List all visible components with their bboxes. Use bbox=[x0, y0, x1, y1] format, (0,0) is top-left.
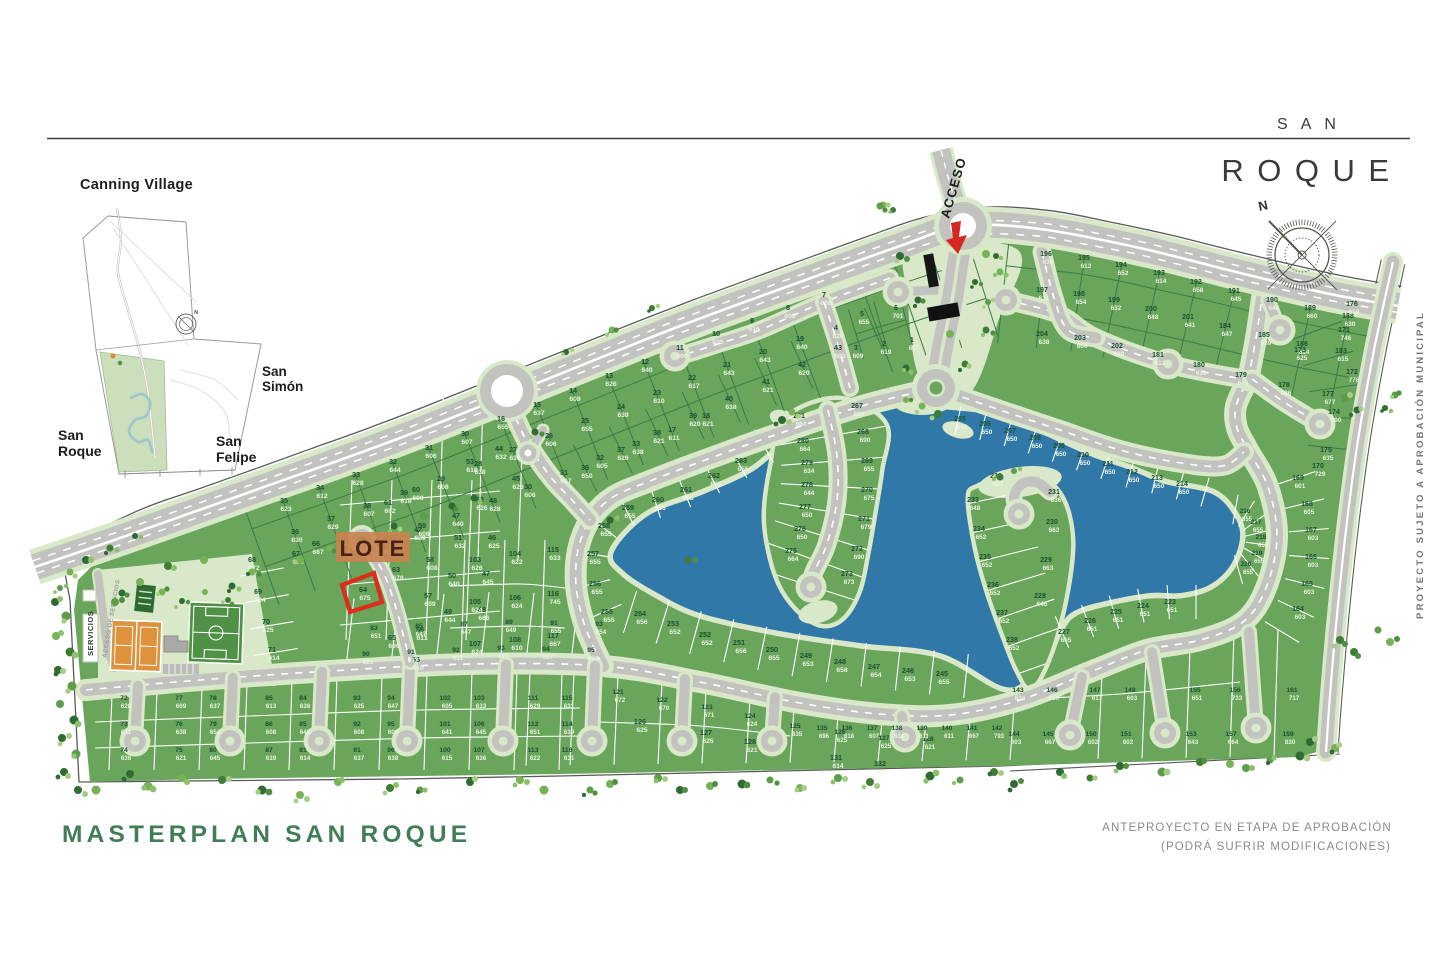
svg-text:260: 260 bbox=[652, 495, 664, 504]
svg-text:159: 159 bbox=[1282, 731, 1294, 738]
svg-text:38: 38 bbox=[363, 501, 371, 510]
svg-text:655: 655 bbox=[1243, 570, 1254, 576]
svg-text:3: 3 bbox=[854, 345, 858, 352]
svg-text:230: 230 bbox=[1046, 519, 1058, 526]
svg-text:42: 42 bbox=[798, 360, 806, 369]
svg-text:87: 87 bbox=[460, 621, 468, 628]
svg-text:701: 701 bbox=[893, 313, 904, 320]
svg-text:91: 91 bbox=[550, 620, 558, 627]
svg-text:171: 171 bbox=[1338, 327, 1350, 334]
svg-text:50: 50 bbox=[448, 571, 456, 580]
svg-text:100: 100 bbox=[439, 747, 451, 754]
svg-text:161: 161 bbox=[1286, 687, 1298, 694]
svg-text:653: 653 bbox=[904, 676, 916, 683]
svg-text:218: 218 bbox=[1256, 534, 1267, 541]
svg-text:652: 652 bbox=[976, 534, 987, 541]
svg-text:262: 262 bbox=[708, 471, 720, 480]
svg-text:104: 104 bbox=[509, 549, 522, 558]
svg-text:690: 690 bbox=[1331, 417, 1342, 424]
svg-text:94: 94 bbox=[387, 695, 395, 702]
svg-text:276: 276 bbox=[794, 526, 806, 533]
svg-text:31: 31 bbox=[560, 468, 568, 477]
svg-text:14: 14 bbox=[569, 386, 578, 395]
svg-text:605: 605 bbox=[596, 463, 608, 470]
svg-text:601: 601 bbox=[1295, 483, 1306, 490]
svg-text:San: San bbox=[58, 427, 84, 443]
svg-text:611: 611 bbox=[121, 729, 132, 736]
svg-text:207: 207 bbox=[1004, 428, 1016, 435]
svg-text:169: 169 bbox=[1292, 475, 1304, 482]
svg-text:651: 651 bbox=[1087, 626, 1098, 633]
svg-text:690: 690 bbox=[854, 554, 865, 561]
svg-text:626: 626 bbox=[471, 565, 483, 572]
svg-text:603: 603 bbox=[1011, 739, 1022, 746]
svg-text:618: 618 bbox=[844, 734, 855, 740]
svg-text:679: 679 bbox=[861, 524, 872, 531]
svg-text:121: 121 bbox=[612, 689, 624, 696]
svg-text:663: 663 bbox=[1043, 565, 1054, 572]
svg-text:20: 20 bbox=[759, 347, 767, 356]
svg-text:225: 225 bbox=[1110, 609, 1122, 616]
svg-text:144: 144 bbox=[1008, 731, 1020, 738]
svg-text:44: 44 bbox=[495, 444, 504, 453]
svg-text:257: 257 bbox=[587, 549, 599, 558]
svg-text:615: 615 bbox=[1338, 356, 1349, 363]
svg-text:SERVICIOS: SERVICIOS bbox=[86, 611, 95, 656]
svg-text:631: 631 bbox=[564, 755, 575, 762]
svg-text:638: 638 bbox=[300, 703, 311, 710]
svg-text:116: 116 bbox=[562, 747, 573, 754]
svg-text:605: 605 bbox=[442, 703, 453, 710]
svg-text:48: 48 bbox=[489, 496, 497, 505]
svg-text:58: 58 bbox=[426, 555, 434, 564]
svg-text:650: 650 bbox=[1129, 477, 1140, 484]
svg-text:609: 609 bbox=[176, 703, 187, 710]
svg-text:Simón: Simón bbox=[262, 379, 303, 394]
svg-text:85: 85 bbox=[265, 695, 273, 702]
svg-text:655: 655 bbox=[581, 426, 593, 433]
svg-text:Roque: Roque bbox=[58, 443, 102, 459]
svg-text:38: 38 bbox=[653, 428, 661, 437]
svg-text:608: 608 bbox=[418, 531, 430, 538]
svg-text:228: 228 bbox=[1034, 593, 1046, 600]
svg-text:1: 1 bbox=[910, 337, 914, 344]
svg-text:638: 638 bbox=[632, 449, 644, 456]
svg-text:251: 251 bbox=[733, 638, 745, 647]
svg-text:614: 614 bbox=[300, 755, 311, 762]
svg-text:261: 261 bbox=[680, 485, 692, 494]
svg-text:27: 27 bbox=[509, 445, 517, 454]
svg-text:625: 625 bbox=[702, 738, 714, 745]
svg-text:122: 122 bbox=[656, 697, 668, 704]
svg-text:29: 29 bbox=[437, 474, 445, 483]
svg-text:13: 13 bbox=[605, 371, 613, 380]
svg-text:70: 70 bbox=[262, 617, 270, 626]
svg-text:148: 148 bbox=[1124, 687, 1136, 694]
svg-text:642: 642 bbox=[300, 729, 311, 736]
svg-text:107: 107 bbox=[469, 639, 481, 648]
svg-text:601: 601 bbox=[876, 769, 888, 776]
svg-text:618: 618 bbox=[1349, 309, 1360, 316]
svg-text:216: 216 bbox=[1240, 508, 1251, 515]
svg-text:624: 624 bbox=[511, 603, 523, 610]
svg-text:248: 248 bbox=[834, 657, 846, 666]
svg-text:61: 61 bbox=[384, 498, 392, 507]
svg-text:614: 614 bbox=[894, 734, 905, 740]
svg-text:83: 83 bbox=[370, 625, 378, 632]
svg-text:68: 68 bbox=[248, 555, 256, 564]
svg-text:623: 623 bbox=[512, 484, 524, 491]
svg-text:650: 650 bbox=[802, 512, 813, 519]
svg-text:60: 60 bbox=[412, 485, 420, 494]
svg-text:2: 2 bbox=[882, 341, 886, 348]
svg-text:655: 655 bbox=[710, 481, 722, 488]
svg-text:651: 651 bbox=[371, 633, 382, 640]
svg-text:667: 667 bbox=[549, 641, 561, 648]
svg-text:670: 670 bbox=[659, 705, 670, 712]
svg-text:620: 620 bbox=[689, 421, 701, 428]
svg-text:140: 140 bbox=[942, 725, 953, 732]
svg-text:39: 39 bbox=[689, 411, 697, 420]
svg-text:95: 95 bbox=[587, 647, 595, 654]
svg-text:93: 93 bbox=[595, 621, 603, 628]
svg-text:183: 183 bbox=[1335, 348, 1347, 355]
svg-text:621: 621 bbox=[176, 755, 187, 762]
svg-text:655: 655 bbox=[603, 617, 615, 624]
svg-text:650: 650 bbox=[1049, 695, 1060, 702]
svg-text:612: 612 bbox=[1155, 360, 1166, 367]
svg-text:PROYECTO SUJETO A APROBACIÓN M: PROYECTO SUJETO A APROBACIÓN MUNICIPAL bbox=[1414, 311, 1426, 619]
svg-text:655: 655 bbox=[600, 531, 612, 538]
svg-text:647: 647 bbox=[1222, 331, 1233, 338]
svg-text:650: 650 bbox=[797, 534, 808, 541]
svg-text:105: 105 bbox=[469, 597, 481, 606]
svg-text:696: 696 bbox=[388, 643, 400, 650]
svg-text:652: 652 bbox=[1009, 645, 1020, 652]
svg-text:213: 213 bbox=[1151, 475, 1163, 482]
svg-text:612: 612 bbox=[1081, 263, 1092, 270]
svg-text:651: 651 bbox=[1113, 617, 1124, 624]
svg-text:127: 127 bbox=[878, 735, 890, 742]
svg-text:654: 654 bbox=[596, 629, 607, 636]
svg-text:22: 22 bbox=[688, 373, 696, 382]
svg-text:652: 652 bbox=[990, 590, 1001, 597]
svg-text:636: 636 bbox=[1043, 259, 1054, 266]
svg-text:611: 611 bbox=[669, 435, 680, 442]
svg-text:637: 637 bbox=[354, 755, 365, 762]
svg-text:184: 184 bbox=[1219, 323, 1231, 330]
svg-text:173: 173 bbox=[1294, 347, 1306, 354]
svg-text:92: 92 bbox=[353, 721, 361, 728]
svg-text:677: 677 bbox=[1325, 399, 1336, 406]
svg-text:621: 621 bbox=[702, 421, 714, 428]
svg-text:652: 652 bbox=[999, 618, 1010, 625]
svg-text:625: 625 bbox=[488, 543, 500, 550]
svg-text:629: 629 bbox=[327, 524, 339, 531]
svg-text:226: 226 bbox=[1084, 618, 1096, 625]
svg-text:175: 175 bbox=[1320, 447, 1332, 454]
svg-text:631: 631 bbox=[1039, 295, 1050, 302]
svg-text:664: 664 bbox=[788, 556, 799, 563]
svg-text:608: 608 bbox=[266, 729, 277, 736]
svg-text:206: 206 bbox=[979, 421, 991, 428]
svg-text:157: 157 bbox=[1225, 731, 1237, 738]
svg-text:616: 616 bbox=[748, 326, 760, 333]
svg-text:672: 672 bbox=[615, 697, 626, 704]
svg-text:93: 93 bbox=[353, 695, 361, 702]
svg-text:267: 267 bbox=[851, 403, 863, 410]
svg-text:793: 793 bbox=[994, 734, 1005, 740]
svg-text:106: 106 bbox=[509, 593, 521, 602]
svg-text:628: 628 bbox=[489, 506, 501, 513]
svg-text:655: 655 bbox=[864, 466, 875, 473]
svg-text:19: 19 bbox=[796, 334, 804, 343]
svg-text:91: 91 bbox=[353, 747, 361, 754]
svg-text:139: 139 bbox=[917, 725, 928, 732]
svg-text:605: 605 bbox=[784, 313, 796, 320]
svg-text:227: 227 bbox=[1058, 629, 1070, 636]
svg-text:622: 622 bbox=[530, 755, 541, 762]
svg-text:607: 607 bbox=[363, 511, 375, 518]
svg-text:607: 607 bbox=[461, 439, 473, 446]
svg-text:25: 25 bbox=[581, 416, 589, 425]
svg-text:610: 610 bbox=[511, 645, 523, 652]
svg-text:84: 84 bbox=[299, 695, 307, 702]
svg-text:106: 106 bbox=[473, 721, 485, 728]
svg-text:717: 717 bbox=[1289, 695, 1300, 702]
svg-text:618: 618 bbox=[400, 498, 412, 505]
svg-text:612: 612 bbox=[316, 493, 328, 500]
svg-text:137: 137 bbox=[867, 725, 878, 732]
svg-text:33: 33 bbox=[352, 470, 360, 479]
svg-text:116: 116 bbox=[547, 589, 559, 598]
svg-text:746: 746 bbox=[1341, 335, 1352, 342]
svg-text:SAN: SAN bbox=[1277, 116, 1349, 133]
svg-text:643: 643 bbox=[723, 370, 735, 377]
svg-text:235: 235 bbox=[979, 554, 991, 561]
svg-text:602: 602 bbox=[1123, 739, 1134, 746]
svg-text:36: 36 bbox=[581, 463, 589, 472]
svg-text:198: 198 bbox=[1073, 291, 1085, 298]
svg-text:657: 657 bbox=[993, 481, 1004, 488]
svg-text:658: 658 bbox=[1193, 287, 1204, 294]
svg-text:35: 35 bbox=[280, 496, 288, 505]
svg-text:75: 75 bbox=[175, 747, 183, 754]
svg-text:229: 229 bbox=[1040, 557, 1052, 564]
svg-text:639: 639 bbox=[266, 755, 277, 762]
svg-text:667: 667 bbox=[969, 734, 980, 740]
svg-text:638: 638 bbox=[1039, 339, 1050, 346]
svg-text:624: 624 bbox=[471, 607, 483, 614]
svg-text:246: 246 bbox=[902, 666, 914, 675]
svg-text:219: 219 bbox=[1252, 550, 1263, 557]
svg-text:745: 745 bbox=[549, 599, 561, 606]
svg-text:652: 652 bbox=[982, 562, 993, 569]
svg-text:729: 729 bbox=[1315, 471, 1326, 478]
svg-text:625: 625 bbox=[262, 627, 274, 634]
svg-text:647: 647 bbox=[461, 629, 472, 636]
svg-text:641: 641 bbox=[1185, 322, 1196, 329]
svg-text:621: 621 bbox=[746, 747, 758, 754]
svg-text:733: 733 bbox=[1232, 695, 1243, 702]
svg-text:103: 103 bbox=[473, 695, 485, 702]
svg-text:633: 633 bbox=[549, 555, 561, 562]
svg-text:650: 650 bbox=[1032, 443, 1043, 450]
svg-text:69: 69 bbox=[254, 587, 262, 596]
svg-text:224: 224 bbox=[1137, 603, 1149, 610]
svg-text:MASTERPLAN SAN ROQUE: MASTERPLAN SAN ROQUE bbox=[62, 821, 471, 848]
svg-text:607: 607 bbox=[869, 734, 880, 740]
svg-text:606: 606 bbox=[524, 492, 536, 499]
svg-text:637: 637 bbox=[533, 410, 545, 417]
svg-text:635: 635 bbox=[792, 731, 803, 738]
svg-text:16: 16 bbox=[497, 414, 505, 423]
svg-text:255: 255 bbox=[601, 607, 613, 616]
svg-text:650: 650 bbox=[1179, 489, 1190, 496]
svg-text:117: 117 bbox=[547, 631, 559, 640]
svg-text:611: 611 bbox=[1196, 370, 1207, 377]
svg-text:47: 47 bbox=[452, 511, 460, 520]
svg-text:635: 635 bbox=[1323, 455, 1334, 462]
svg-text:111: 111 bbox=[528, 695, 539, 702]
svg-text:237: 237 bbox=[996, 610, 1008, 617]
svg-text:108: 108 bbox=[509, 635, 521, 644]
svg-text:180: 180 bbox=[1193, 362, 1205, 369]
svg-text:ANTEPROYECTO EN ETAPA DE APROB: ANTEPROYECTO EN ETAPA DE APROBACIÓN bbox=[1102, 821, 1392, 834]
svg-text:606: 606 bbox=[545, 441, 557, 448]
svg-text:608: 608 bbox=[354, 729, 365, 736]
svg-text:86: 86 bbox=[265, 721, 273, 728]
svg-text:81: 81 bbox=[299, 747, 307, 754]
svg-text:606: 606 bbox=[676, 353, 688, 360]
svg-text:30: 30 bbox=[461, 429, 469, 438]
svg-text:647: 647 bbox=[416, 631, 427, 638]
svg-text:185: 185 bbox=[1258, 332, 1270, 339]
svg-text:610: 610 bbox=[412, 665, 424, 672]
svg-text:624: 624 bbox=[254, 597, 266, 604]
svg-text:650: 650 bbox=[1007, 436, 1018, 443]
svg-text:619: 619 bbox=[881, 349, 892, 356]
svg-text:608: 608 bbox=[820, 300, 832, 307]
svg-text:172: 172 bbox=[1346, 369, 1358, 376]
svg-text:250: 250 bbox=[766, 645, 778, 654]
svg-text:ROQUE: ROQUE bbox=[1221, 153, 1402, 188]
svg-text:665: 665 bbox=[1061, 637, 1072, 644]
svg-text:634: 634 bbox=[804, 468, 815, 475]
svg-text:656: 656 bbox=[735, 648, 747, 655]
svg-text:655: 655 bbox=[654, 505, 666, 512]
svg-text:(PODRÁ SUFRIR MODIFICACIONES): (PODRÁ SUFRIR MODIFICACIONES) bbox=[1161, 840, 1391, 853]
svg-text:617: 617 bbox=[1092, 695, 1103, 702]
svg-text:181: 181 bbox=[1152, 352, 1164, 359]
svg-text:151: 151 bbox=[1120, 731, 1132, 738]
svg-text:652: 652 bbox=[1118, 270, 1129, 277]
svg-text:40: 40 bbox=[725, 394, 733, 403]
svg-text:176: 176 bbox=[1346, 301, 1358, 308]
svg-text:LOTE: LOTE bbox=[340, 536, 407, 561]
svg-text:655: 655 bbox=[682, 495, 694, 502]
svg-text:650: 650 bbox=[1080, 460, 1091, 467]
svg-text:614: 614 bbox=[832, 763, 844, 770]
svg-text:43: 43 bbox=[834, 343, 842, 352]
svg-text:644: 644 bbox=[389, 467, 401, 474]
svg-text:636: 636 bbox=[476, 755, 487, 762]
svg-text:200: 200 bbox=[1145, 306, 1157, 313]
svg-text:123: 123 bbox=[701, 704, 713, 711]
svg-text:91: 91 bbox=[407, 649, 415, 656]
svg-text:611: 611 bbox=[944, 734, 954, 740]
svg-text:Felipe: Felipe bbox=[216, 449, 257, 465]
svg-text:223: 223 bbox=[1164, 599, 1176, 606]
svg-text:174: 174 bbox=[1328, 409, 1340, 416]
svg-text:649: 649 bbox=[506, 627, 517, 634]
svg-text:830: 830 bbox=[1285, 739, 1296, 746]
svg-text:196: 196 bbox=[1040, 251, 1052, 258]
svg-text:211: 211 bbox=[1102, 461, 1113, 468]
svg-text:34: 34 bbox=[316, 483, 325, 492]
svg-text:609: 609 bbox=[853, 353, 864, 360]
svg-text:621: 621 bbox=[925, 744, 936, 751]
svg-text:203: 203 bbox=[1074, 335, 1086, 342]
svg-text:690: 690 bbox=[860, 437, 871, 444]
svg-text:272: 272 bbox=[851, 546, 863, 553]
svg-text:655: 655 bbox=[1258, 543, 1269, 549]
svg-text:636: 636 bbox=[121, 755, 132, 762]
svg-text:115: 115 bbox=[562, 695, 573, 702]
svg-text:127: 127 bbox=[700, 728, 712, 737]
svg-text:233: 233 bbox=[967, 497, 979, 504]
svg-text:610: 610 bbox=[653, 398, 665, 405]
svg-text:142: 142 bbox=[992, 725, 1003, 732]
svg-text:646: 646 bbox=[1269, 305, 1280, 312]
svg-text:190: 190 bbox=[1266, 297, 1278, 304]
svg-text:603: 603 bbox=[1295, 614, 1306, 621]
svg-text:138: 138 bbox=[892, 725, 903, 732]
svg-text:164: 164 bbox=[1292, 606, 1304, 613]
svg-text:626: 626 bbox=[617, 455, 629, 462]
svg-text:609: 609 bbox=[424, 601, 436, 608]
svg-text:194: 194 bbox=[1115, 262, 1127, 269]
svg-text:632: 632 bbox=[454, 543, 466, 550]
svg-text:165: 165 bbox=[1301, 581, 1313, 588]
svg-text:617: 617 bbox=[688, 383, 700, 390]
svg-text:64: 64 bbox=[359, 585, 368, 594]
svg-text:687: 687 bbox=[312, 549, 324, 556]
svg-text:47: 47 bbox=[482, 569, 490, 578]
svg-text:639: 639 bbox=[1261, 340, 1272, 347]
svg-text:655: 655 bbox=[1254, 559, 1265, 565]
svg-text:37: 37 bbox=[617, 445, 625, 454]
svg-text:629: 629 bbox=[530, 703, 541, 710]
svg-text:611: 611 bbox=[453, 655, 464, 662]
svg-text:65: 65 bbox=[388, 633, 396, 642]
svg-text:655: 655 bbox=[768, 655, 780, 662]
svg-text:6: 6 bbox=[894, 305, 898, 312]
svg-text:637: 637 bbox=[210, 703, 221, 710]
svg-text:602: 602 bbox=[384, 508, 396, 515]
svg-text:645: 645 bbox=[476, 729, 487, 736]
svg-text:24: 24 bbox=[617, 402, 626, 411]
svg-text:268: 268 bbox=[857, 429, 869, 436]
svg-text:650: 650 bbox=[957, 424, 968, 431]
svg-text:87: 87 bbox=[265, 747, 273, 754]
svg-text:8: 8 bbox=[786, 303, 790, 312]
svg-text:245: 245 bbox=[936, 669, 948, 678]
svg-text:625: 625 bbox=[1297, 355, 1308, 362]
svg-text:654: 654 bbox=[210, 729, 221, 736]
svg-text:11: 11 bbox=[676, 343, 684, 352]
svg-text:643: 643 bbox=[759, 357, 771, 364]
